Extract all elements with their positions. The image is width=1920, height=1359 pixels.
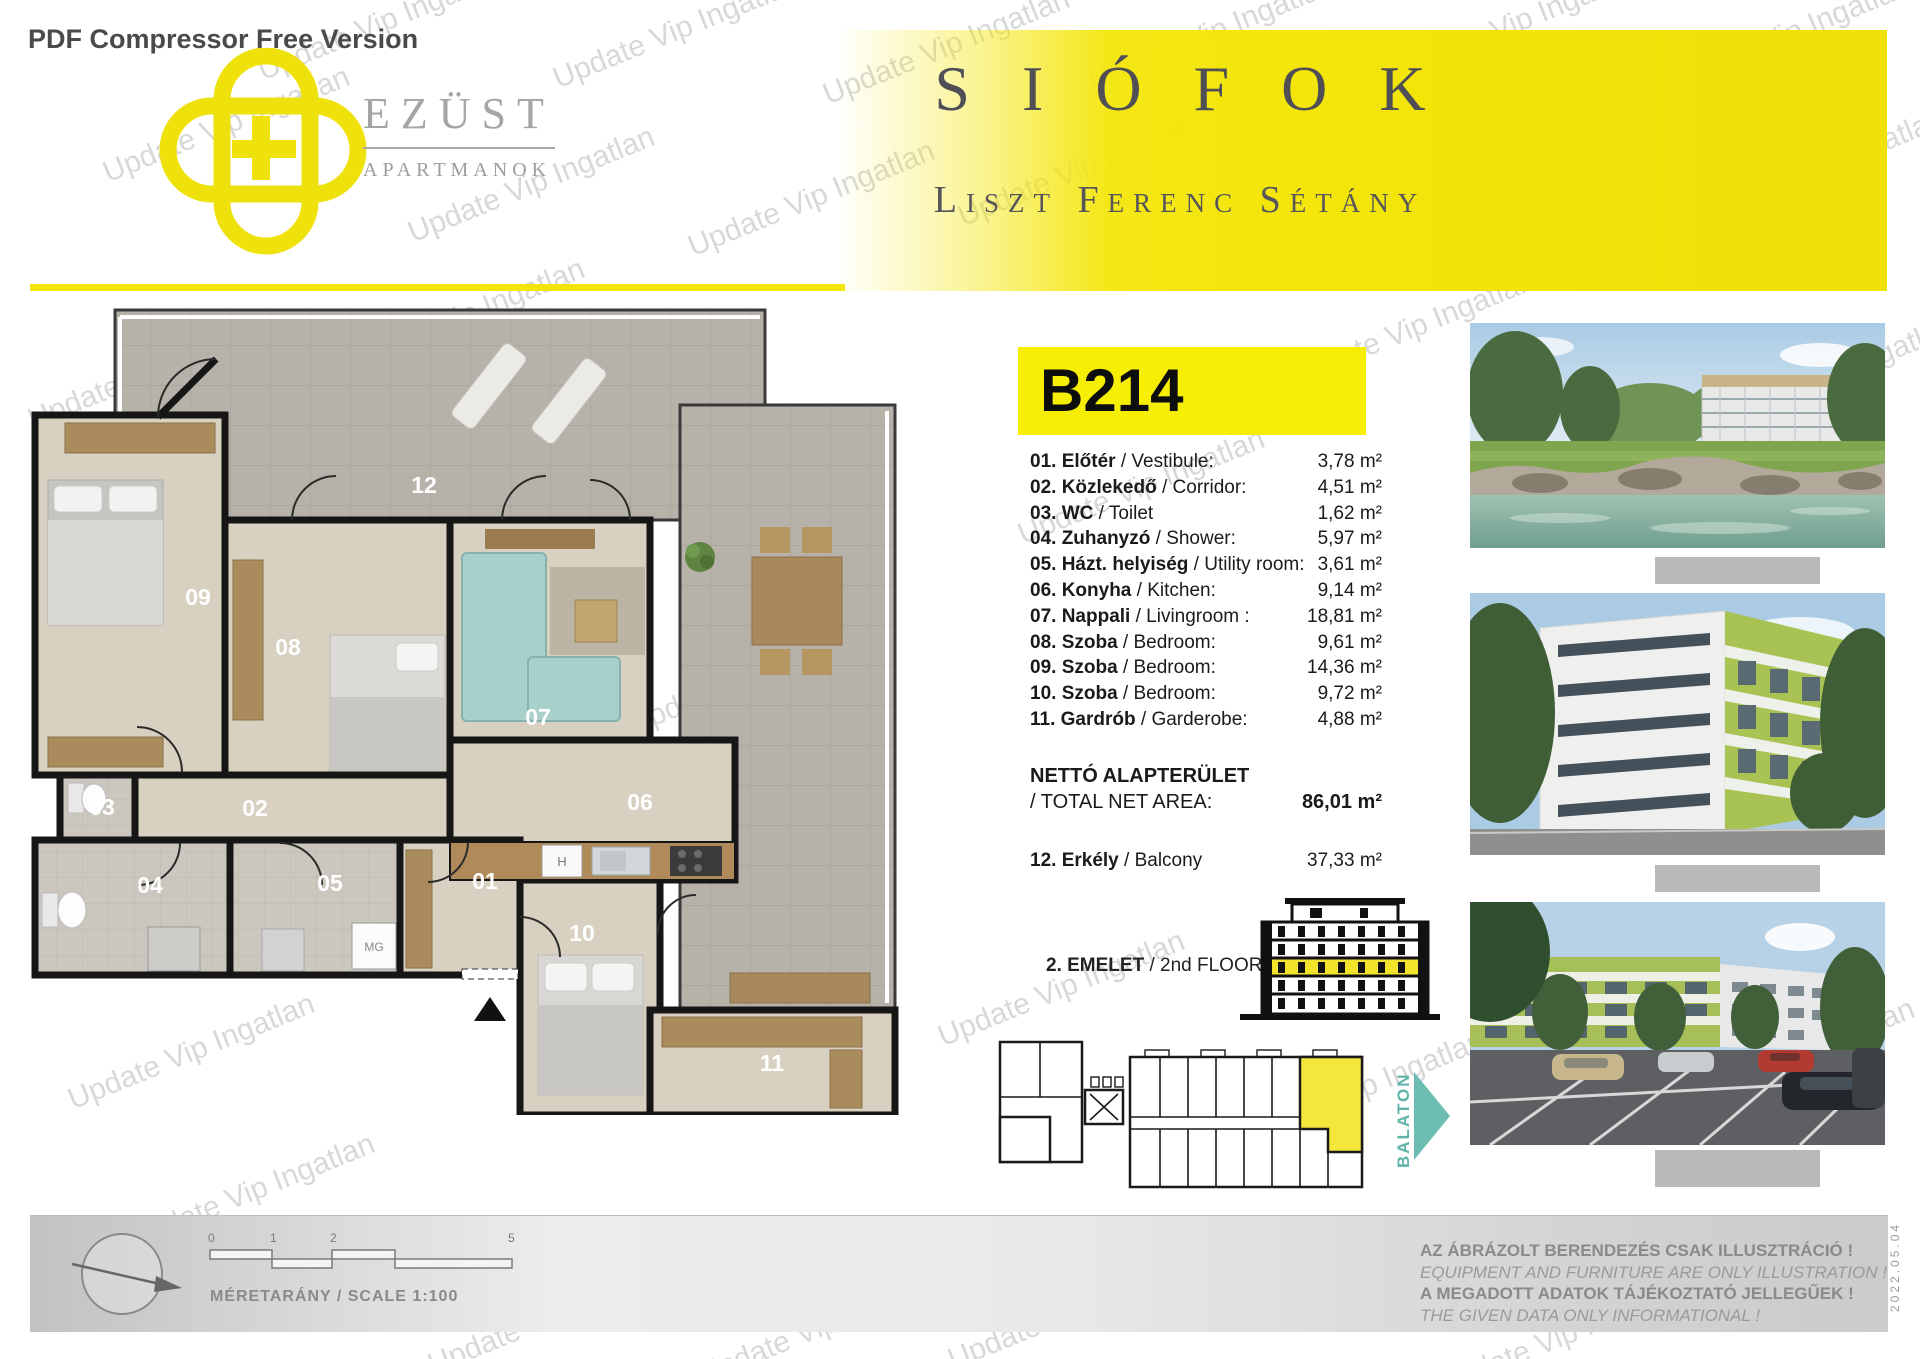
watermark-text: Update Vip Ingatlan (548, 0, 805, 96)
room-name-en: / Bedroom: (1118, 681, 1216, 707)
room-name-hu: 10. Szoba (1030, 681, 1118, 707)
room-row: 08. Szoba / Bedroom: 9,61 m² (1030, 630, 1382, 656)
balcony-row: 12. Erkély / Balcony 37,33 m² (1030, 850, 1382, 872)
room-label: 06 (627, 789, 653, 815)
room-row: 11. Gardrób / Garderobe: 4,88 m² (1030, 707, 1382, 733)
scale-caption: MÉRETARÁNY / SCALE 1:100 (210, 1288, 458, 1306)
scale-tick: 1 (270, 1231, 277, 1245)
room-row: 10. Szoba / Bedroom: 9,72 m² (1030, 681, 1382, 707)
floor-key-plan (995, 1022, 1365, 1212)
building-elevation-diagram (1240, 888, 1440, 1028)
balaton-arrow-icon (1414, 1072, 1450, 1160)
disclaimer-line: THE GIVEN DATA ONLY INFORMATIONAL ! (1420, 1305, 1890, 1327)
room-name-en: / Shower: (1150, 526, 1236, 552)
room-label: 11 (760, 1050, 785, 1076)
total-net-area: NETTÓ ALAPTERÜLET / TOTAL NET AREA: 86,0… (1030, 763, 1382, 815)
entrance-arrow-icon (474, 997, 506, 1021)
room-name-hu: 06. Konyha (1030, 578, 1131, 604)
room-area-value: 3,61 m² (1318, 552, 1382, 578)
entrance-threshold (462, 969, 518, 979)
room-label: 09 (185, 584, 211, 610)
total-area-value: 86,01 m² (1302, 789, 1382, 815)
brand-subtitle: APARTMANOK (363, 159, 555, 182)
room-area-value: 3,78 m² (1318, 449, 1382, 475)
room-row: 01. Előtér / Vestibule: 3,78 m² (1030, 449, 1382, 475)
room-row: 04. Zuhanyzó / Shower: 5,97 m² (1030, 526, 1382, 552)
room-row: 06. Konyha / Kitchen: 9,14 m² (1030, 578, 1382, 604)
room-name-hu: 04. Zuhanyzó (1030, 526, 1150, 552)
washer-label: MG (364, 940, 383, 954)
room-label: 07 (525, 704, 551, 730)
room-label: 08 (275, 634, 301, 660)
room-name-en: / Livingroom : (1130, 604, 1249, 630)
room-name-hu: 11. Gardrób (1030, 707, 1136, 733)
unit-code-badge: B214 (1018, 347, 1366, 435)
room-label: 04 (137, 872, 163, 898)
total-label-en: / TOTAL NET AREA: (1030, 789, 1212, 815)
header-yellow-rule (30, 284, 845, 291)
photo-caption-placeholder (1655, 557, 1820, 584)
room-area-value: 14,36 m² (1307, 655, 1382, 681)
room-name-en: / Bedroom: (1118, 630, 1216, 656)
page-title-street: Liszt Ferenc Sétány (860, 178, 1500, 222)
scale-tick: 5 (508, 1231, 515, 1245)
room-name-hu: 08. Szoba (1030, 630, 1118, 656)
room-area-value: 18,81 m² (1307, 604, 1382, 630)
room-area-value: 9,61 m² (1318, 630, 1382, 656)
balcony-label-en: / Balcony (1119, 850, 1202, 872)
photo-caption-placeholder (1655, 1150, 1820, 1187)
disclaimer-line: AZ ÁBRÁZOLT BERENDEZÉS CSAK ILLUSZTRÁCIÓ… (1420, 1240, 1890, 1262)
photo-building-corner-render (1470, 593, 1885, 855)
room-label: 03 (89, 794, 115, 820)
room-name-en: / Bedroom: (1118, 655, 1216, 681)
room-name-en: / Corridor: (1157, 475, 1247, 501)
room-name-hu: 02. Közlekedő (1030, 475, 1157, 501)
room-name-en: / Garderobe: (1136, 707, 1248, 733)
scale-tick: 2 (330, 1231, 337, 1245)
disclaimer-block: AZ ÁBRÁZOLT BERENDEZÉS CSAK ILLUSZTRÁCIÓ… (1420, 1240, 1890, 1326)
room-label: 10 (569, 920, 595, 946)
floor-indicator: 2. EMELET / 2nd FLOOR (1046, 955, 1262, 977)
disclaimer-line: A MEGADOTT ADATOK TÁJÉKOZTATÓ JELLEGŰEK … (1420, 1283, 1890, 1305)
room-name-hu: 09. Szoba (1030, 655, 1118, 681)
room-name-hu: 05. Házt. helyiség (1030, 552, 1188, 578)
brand-name: EZÜST (363, 88, 555, 149)
balcony-area-value: 37,33 m² (1307, 850, 1382, 872)
room-area-value: 1,62 m² (1318, 501, 1382, 527)
scale-tick: 0 (208, 1231, 215, 1245)
room-02-corridor (135, 775, 450, 840)
room-row: 03. WC / Toilet 1,62 m² (1030, 501, 1382, 527)
room-row: 07. Nappali / Livingroom : 18,81 m² (1030, 604, 1382, 630)
room-name-en: / Kitchen: (1131, 578, 1216, 604)
room-area-value: 4,88 m² (1318, 707, 1382, 733)
balcony-side (680, 405, 895, 1010)
fridge-label: H (557, 854, 566, 869)
room-area-value: 5,97 m² (1318, 526, 1382, 552)
room-row: 05. Házt. helyiség / Utility room: 3,61 … (1030, 552, 1382, 578)
room-row: 02. Közlekedő / Corridor: 4,51 m² (1030, 475, 1382, 501)
disclaimer-line: EQUIPMENT AND FURNITURE ARE ONLY ILLUSTR… (1420, 1262, 1890, 1284)
photo-lakeside-render (1470, 323, 1885, 548)
balaton-direction-label: BALATON (1394, 1058, 1414, 1168)
room-name-en: / Toilet (1093, 501, 1153, 527)
floorplan-drawing: 12 09 08 07 06 03 02 04 05 01 10 11 H MG (30, 305, 900, 1115)
room-label: 12 (411, 472, 437, 498)
ezust-logo-icon (140, 48, 375, 268)
photo-street-render (1470, 902, 1885, 1145)
room-row: 09. Szoba / Bedroom: 14,36 m² (1030, 655, 1382, 681)
brand-block: EZÜST APARTMANOK (363, 88, 555, 182)
room-name-hu: 01. Előtér (1030, 449, 1116, 475)
room-list: 01. Előtér / Vestibule: 3,78 m² 02. Közl… (1030, 449, 1382, 733)
balcony-label-hu: 12. Erkély (1030, 850, 1119, 872)
room-name-en: / Utility room: (1188, 552, 1304, 578)
floor-indicator-hu: 2. EMELET (1046, 955, 1144, 976)
total-label-hu: NETTÓ ALAPTERÜLET (1030, 763, 1382, 789)
photo-caption-placeholder (1655, 865, 1820, 892)
revision-date: 2022.05.04 (1888, 1162, 1902, 1312)
room-label: 02 (242, 795, 268, 821)
scale-bar: 0 1 2 5 (200, 1228, 540, 1284)
page-title-city: SIÓFOK (860, 52, 1500, 126)
room-area-value: 9,14 m² (1318, 578, 1382, 604)
room-area-value: 4,51 m² (1318, 475, 1382, 501)
north-compass-icon (60, 1228, 190, 1323)
room-label: 01 (472, 868, 498, 894)
room-label: 05 (317, 870, 343, 896)
room-name-en: / Vestibule: (1116, 449, 1214, 475)
room-name-hu: 03. WC (1030, 501, 1093, 527)
flyer-page: Update Vip IngatlanUpdate Vip IngatlanUp… (0, 0, 1920, 1359)
room-area-value: 9,72 m² (1318, 681, 1382, 707)
room-name-hu: 07. Nappali (1030, 604, 1130, 630)
